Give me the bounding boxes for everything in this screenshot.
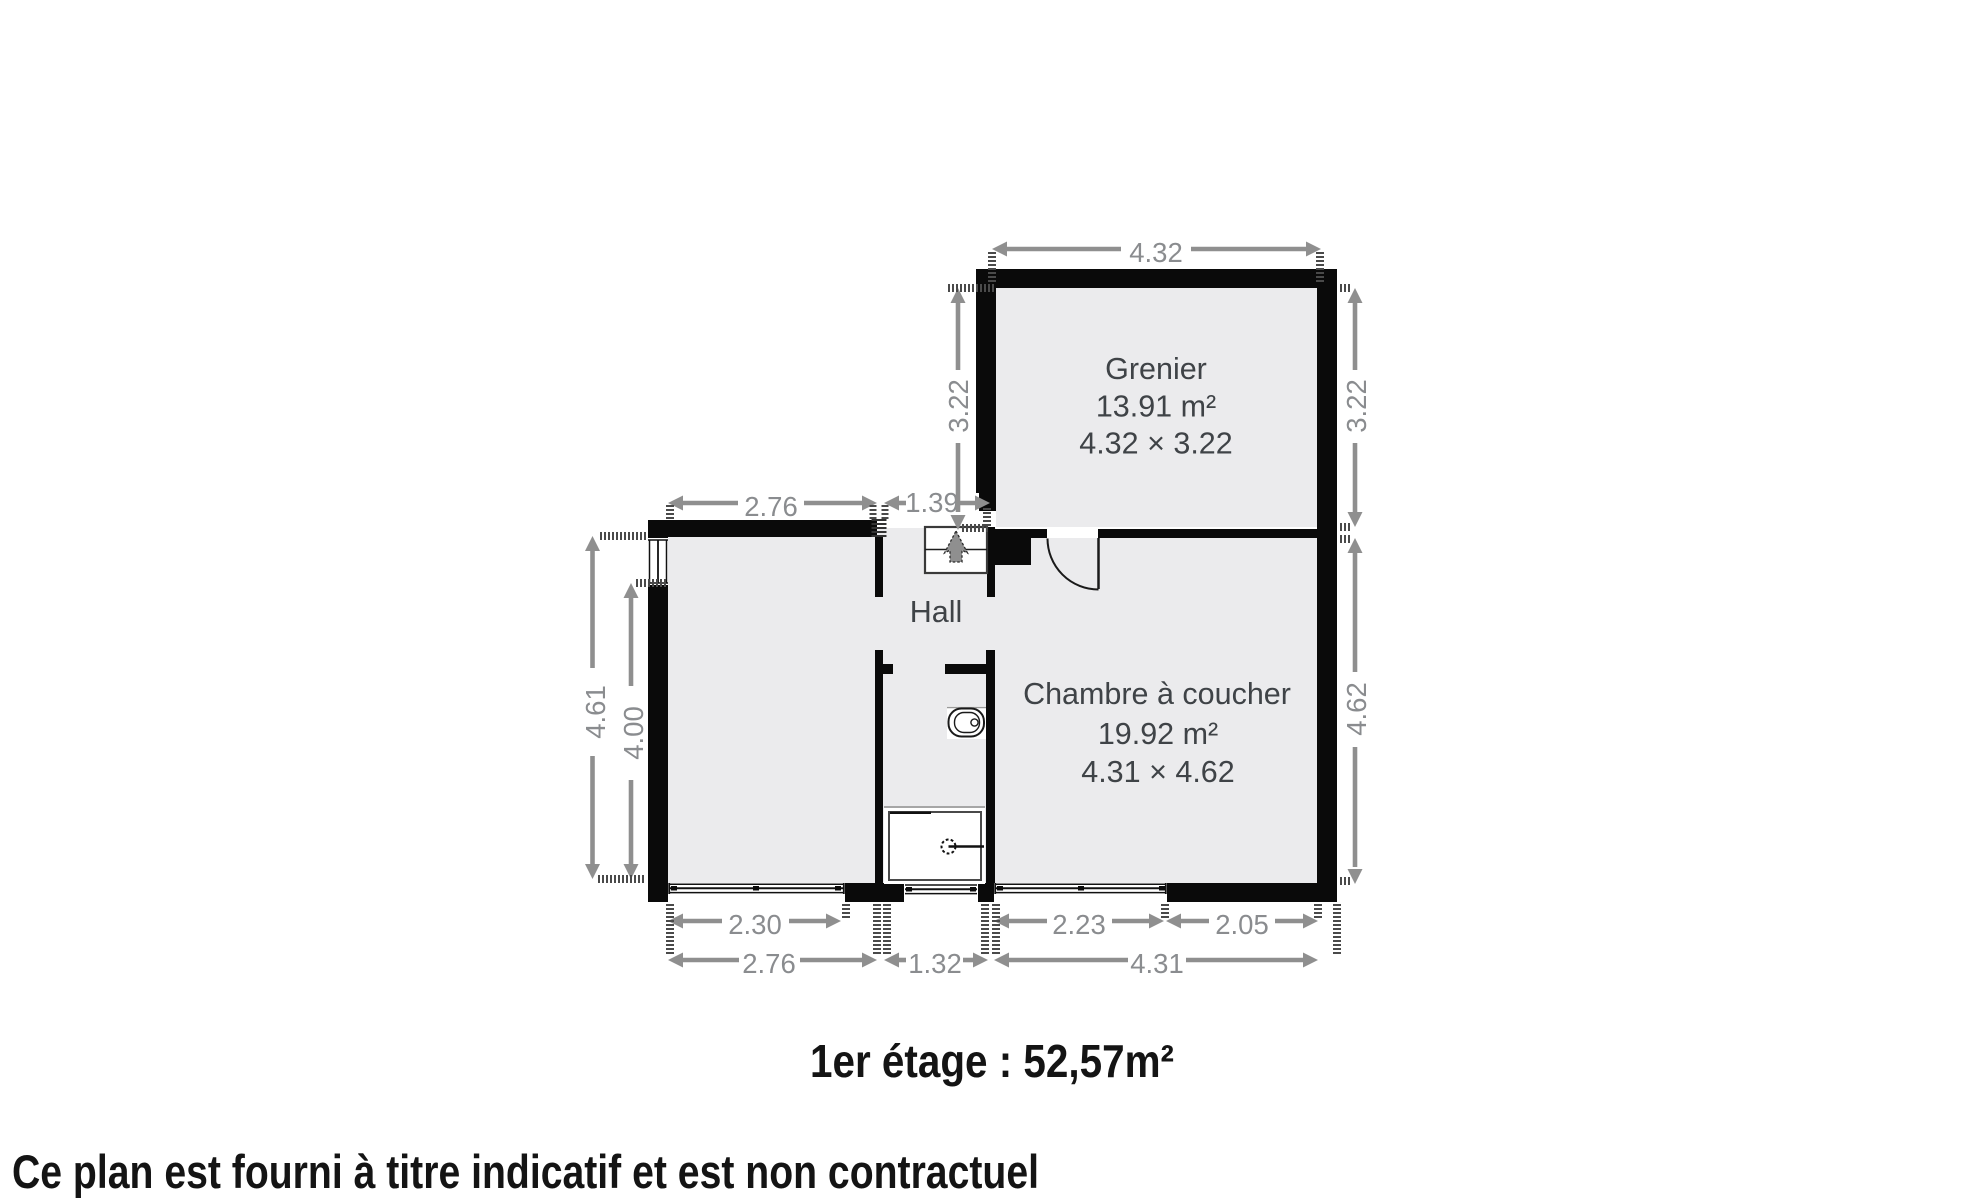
svg-text:4.31 × 4.62: 4.31 × 4.62 — [1081, 755, 1234, 789]
svg-text:2.76: 2.76 — [744, 491, 798, 522]
svg-text:4.62: 4.62 — [1341, 682, 1372, 736]
svg-text:2.05: 2.05 — [1215, 909, 1269, 940]
svg-text:Ce plan est fourni à titre ind: Ce plan est fourni à titre indicatif et … — [12, 1145, 1039, 1198]
svg-text:1er étage : 52,57m²: 1er étage : 52,57m² — [810, 1035, 1174, 1087]
svg-text:2.30: 2.30 — [728, 909, 782, 940]
svg-text:Hall: Hall — [910, 595, 963, 629]
svg-text:4.32 × 3.22: 4.32 × 3.22 — [1079, 427, 1232, 461]
svg-text:4.00: 4.00 — [618, 706, 649, 760]
svg-text:19.92 m²: 19.92 m² — [1098, 717, 1218, 751]
svg-text:Chambre à coucher: Chambre à coucher — [1023, 677, 1291, 711]
svg-text:Grenier: Grenier — [1105, 352, 1207, 386]
svg-text:4.32: 4.32 — [1129, 237, 1183, 268]
svg-text:13.91 m²: 13.91 m² — [1096, 390, 1216, 424]
svg-text:3.22: 3.22 — [1341, 379, 1372, 433]
svg-text:4.31: 4.31 — [1130, 948, 1184, 979]
svg-text:2.23: 2.23 — [1052, 909, 1106, 940]
svg-text:1.32: 1.32 — [908, 948, 962, 979]
svg-text:1.39: 1.39 — [905, 487, 959, 518]
svg-text:4.61: 4.61 — [580, 685, 611, 739]
svg-text:2.76: 2.76 — [742, 948, 796, 979]
svg-text:3.22: 3.22 — [943, 379, 974, 433]
